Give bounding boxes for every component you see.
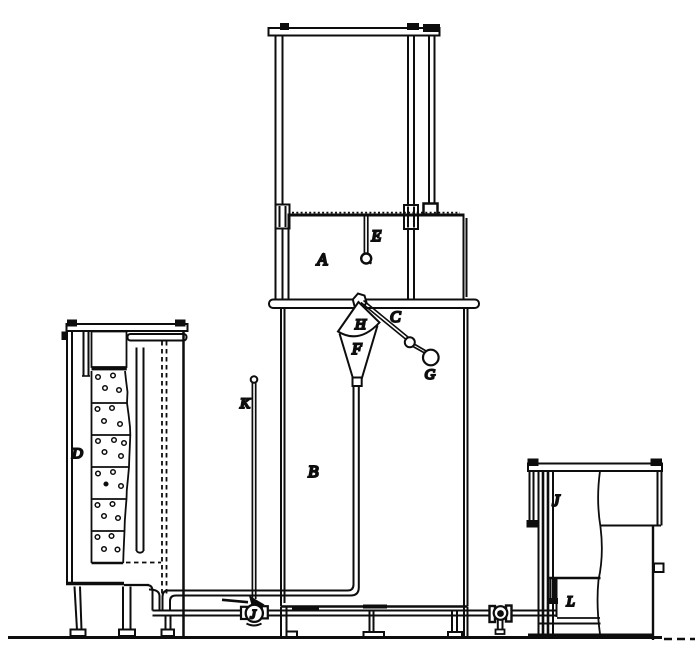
svg-text:F: F [351, 341, 362, 358]
svg-text:K: K [239, 396, 251, 412]
svg-text:J: J [552, 491, 561, 510]
svg-text:C: C [390, 309, 401, 326]
svg-text:B: B [308, 462, 319, 481]
svg-text:A: A [316, 250, 328, 269]
svg-text:E: E [371, 228, 382, 245]
svg-text:G: G [425, 367, 436, 383]
svg-text:H: H [354, 317, 367, 333]
svg-text:D: D [71, 446, 83, 462]
svg-text:L: L [566, 594, 575, 610]
